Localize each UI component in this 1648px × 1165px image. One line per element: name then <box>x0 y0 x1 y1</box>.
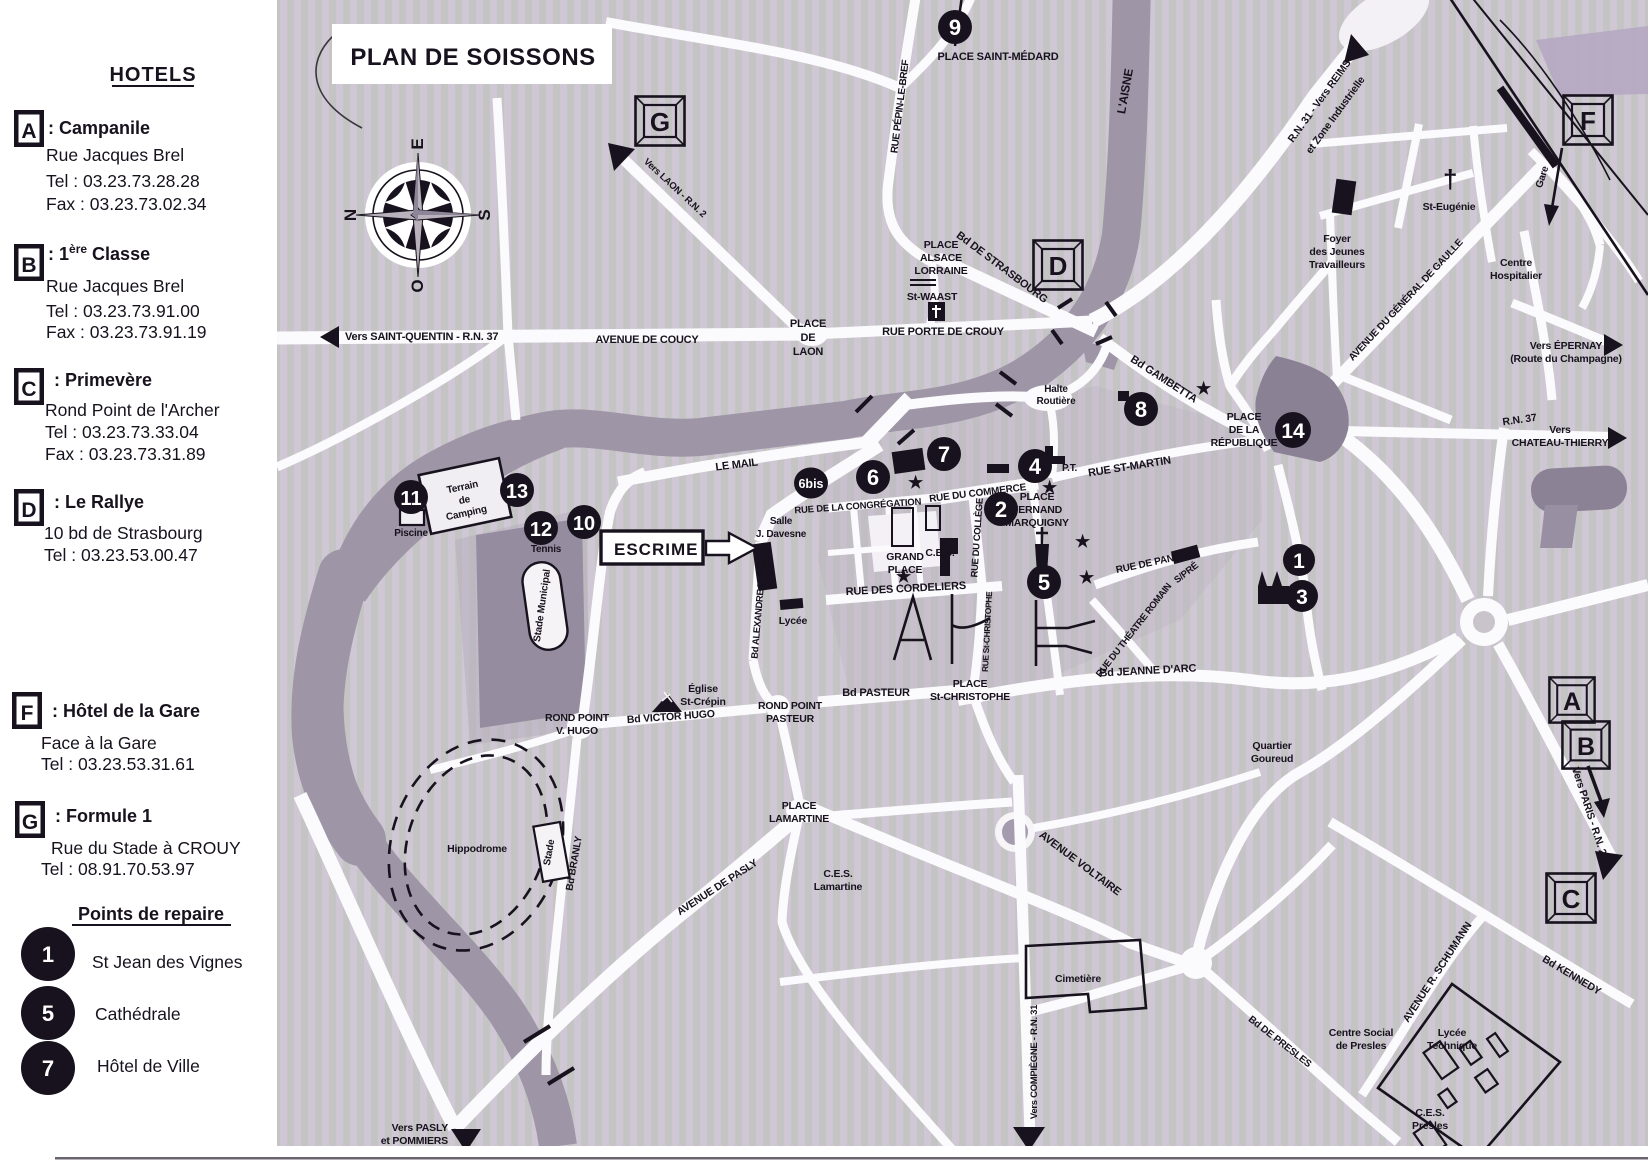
svg-text:et POMMIERS: et POMMIERS <box>381 1135 448 1147</box>
svg-text:St-WAAST: St-WAAST <box>907 291 958 303</box>
svg-text:14: 14 <box>1281 420 1305 443</box>
svg-text:12: 12 <box>530 519 552 541</box>
svg-text:RUE PORTE DE CROUY: RUE PORTE DE CROUY <box>882 326 1005 338</box>
svg-text:PLACE: PLACE <box>888 564 923 576</box>
svg-text:PLAN DE SOISSONS: PLAN DE SOISSONS <box>350 44 595 71</box>
svg-text:4: 4 <box>1029 454 1042 479</box>
svg-text:Rond Point de l'Archer: Rond Point de l'Archer <box>45 400 220 420</box>
svg-text:Tel : 03.23.73.33.04: Tel : 03.23.73.33.04 <box>45 422 199 442</box>
svg-text:HOTELS: HOTELS <box>109 64 196 86</box>
svg-text:1: 1 <box>42 942 54 967</box>
svg-text:Tel : 03.23.73.91.00: Tel : 03.23.73.91.00 <box>46 301 200 321</box>
svg-text:Halte: Halte <box>1044 384 1068 395</box>
svg-text:6bis: 6bis <box>798 477 823 491</box>
svg-text:St-Eugénie: St-Eugénie <box>1423 201 1476 213</box>
svg-text:D: D <box>1049 251 1068 281</box>
svg-text:St-CHRISTOPHE: St-CHRISTOPHE <box>930 691 1010 703</box>
svg-text:Vers COMPIÈGNE - R.N. 31: Vers COMPIÈGNE - R.N. 31 <box>1029 1004 1040 1119</box>
svg-text:Technique: Technique <box>1427 1040 1477 1052</box>
svg-text:DE: DE <box>801 332 816 344</box>
svg-text:Tel : 08.91.70.53.97: Tel : 08.91.70.53.97 <box>41 859 195 879</box>
svg-text:: Le Rallye: : Le Rallye <box>54 492 144 512</box>
svg-text:C.E.S.: C.E.S. <box>1415 1107 1444 1119</box>
svg-text:GRAND: GRAND <box>886 551 924 563</box>
svg-text:LORRAINE: LORRAINE <box>914 265 967 277</box>
svg-text:7: 7 <box>938 442 950 467</box>
svg-text:10: 10 <box>573 513 595 535</box>
svg-text:FERNAND: FERNAND <box>1012 504 1063 516</box>
svg-text:Vers: Vers <box>1549 424 1571 436</box>
svg-text:P.T.: P.T. <box>1062 463 1078 474</box>
svg-text:7: 7 <box>42 1056 54 1081</box>
svg-text:B: B <box>1577 733 1595 761</box>
svg-text:1: 1 <box>1293 550 1305 573</box>
svg-text:Fax : 03.23.73.02.34: Fax : 03.23.73.02.34 <box>46 194 207 214</box>
svg-text:13: 13 <box>506 481 528 503</box>
svg-text:: Formule 1: : Formule 1 <box>55 806 152 826</box>
svg-text:N: N <box>341 209 360 221</box>
svg-text:ROND POINT: ROND POINT <box>545 712 610 724</box>
svg-text:: Primevère: : Primevère <box>54 370 152 390</box>
svg-text:PLACE: PLACE <box>1020 491 1055 503</box>
svg-text:Lycée: Lycée <box>779 615 808 627</box>
svg-text:PLACE: PLACE <box>924 239 959 251</box>
svg-text:Rue du Stade à CROUY: Rue du Stade à CROUY <box>51 838 241 858</box>
svg-text:PLACE SAINT-MÉDARD: PLACE SAINT-MÉDARD <box>937 50 1058 63</box>
svg-text:O: O <box>408 279 427 292</box>
svg-text:Cathédrale: Cathédrale <box>95 1004 181 1024</box>
svg-text:6: 6 <box>867 465 879 490</box>
svg-text:Tel : 03.23.53.31.61: Tel : 03.23.53.31.61 <box>41 754 195 774</box>
svg-text:B: B <box>21 254 36 277</box>
svg-text:Presles: Presles <box>1412 1120 1448 1132</box>
svg-text:E: E <box>408 138 427 149</box>
svg-text:†: † <box>1443 164 1457 194</box>
svg-text:C: C <box>21 378 36 401</box>
svg-text:Face à la Gare: Face à la Gare <box>41 733 157 753</box>
svg-text:DE LA: DE LA <box>1229 424 1260 436</box>
svg-text:A: A <box>21 120 36 143</box>
svg-text:3: 3 <box>1296 586 1308 609</box>
svg-text:★: ★ <box>908 473 924 492</box>
svg-text:PLACE: PLACE <box>790 318 826 330</box>
svg-text:PASTEUR: PASTEUR <box>766 713 815 725</box>
svg-text:: Campanile: : Campanile <box>48 118 150 138</box>
svg-text:ROND POINT: ROND POINT <box>758 700 823 712</box>
svg-text:Centre Social: Centre Social <box>1329 1027 1394 1039</box>
svg-text:(Route du Champagne): (Route du Champagne) <box>1510 353 1622 365</box>
svg-text:9: 9 <box>949 15 961 40</box>
svg-text:PLACE: PLACE <box>1227 411 1262 423</box>
svg-text:de Presles: de Presles <box>1336 1040 1387 1052</box>
svg-text:Goureud: Goureud <box>1251 753 1293 765</box>
svg-text:Cimetière: Cimetière <box>1055 973 1101 985</box>
svg-text:Fax : 03.23.73.91.19: Fax : 03.23.73.91.19 <box>46 322 207 342</box>
svg-text:S: S <box>475 209 494 220</box>
svg-text:C.E.S.: C.E.S. <box>925 547 954 559</box>
svg-text:RÉPUBLIQUE: RÉPUBLIQUE <box>1211 436 1278 449</box>
svg-text:F: F <box>21 702 34 725</box>
svg-text:Vers ÉPERNAY: Vers ÉPERNAY <box>1530 339 1603 352</box>
svg-text:C: C <box>1562 884 1581 914</box>
svg-text:G: G <box>22 811 38 834</box>
svg-text:ALSACE: ALSACE <box>920 252 962 264</box>
svg-text:Hospitalier: Hospitalier <box>1490 270 1542 282</box>
svg-text:Fax : 03.23.73.31.89: Fax : 03.23.73.31.89 <box>45 444 206 464</box>
svg-text:11: 11 <box>400 488 421 510</box>
svg-text:5: 5 <box>1038 570 1050 595</box>
svg-text:C.E.S.: C.E.S. <box>823 868 852 880</box>
svg-text:AVENUE DE COUCY: AVENUE DE COUCY <box>595 334 699 346</box>
svg-text:J. Davesne: J. Davesne <box>756 529 807 540</box>
svg-text:Lamartine: Lamartine <box>814 881 863 893</box>
svg-text:Salle: Salle <box>770 516 793 527</box>
svg-text:Tel : 03.23.53.00.47: Tel : 03.23.53.00.47 <box>44 545 198 565</box>
svg-text:Vers PASLY: Vers PASLY <box>392 1122 449 1134</box>
svg-text:F: F <box>1580 106 1596 136</box>
svg-text:Vers SAINT-QUENTIN - R.N. 37: Vers SAINT-QUENTIN - R.N. 37 <box>345 331 498 343</box>
svg-text:St Jean des Vignes: St Jean des Vignes <box>92 952 243 972</box>
svg-text:St-Crépin: St-Crépin <box>680 696 725 708</box>
svg-text:10 bd de Strasbourg: 10 bd de Strasbourg <box>44 523 203 543</box>
svg-text:G: G <box>650 107 670 137</box>
svg-text:: Hôtel de la Gare: : Hôtel de la Gare <box>52 701 200 721</box>
svg-text:Points de repaire: Points de repaire <box>78 904 224 924</box>
svg-text:Quartier: Quartier <box>1252 740 1291 752</box>
svg-text:Hippodrome: Hippodrome <box>447 843 507 855</box>
svg-text:5: 5 <box>42 1001 54 1026</box>
svg-text:LAMARTINE: LAMARTINE <box>769 813 829 825</box>
svg-text:★: ★ <box>1079 568 1095 587</box>
svg-text:Rue Jacques Brel: Rue Jacques Brel <box>46 145 184 165</box>
svg-text:Tel : 03.23.73.28.28: Tel : 03.23.73.28.28 <box>46 171 200 191</box>
svg-text:LAON: LAON <box>793 346 824 358</box>
svg-text:A: A <box>1563 688 1581 716</box>
svg-text:Hôtel de Ville: Hôtel de Ville <box>97 1056 200 1076</box>
svg-text:des Jeunes: des Jeunes <box>1309 246 1365 258</box>
svg-text:PLACE: PLACE <box>782 800 817 812</box>
svg-text:Rue Jacques Brel: Rue Jacques Brel <box>46 276 184 296</box>
svg-text:D: D <box>21 499 36 522</box>
svg-text:PLACE: PLACE <box>953 678 988 690</box>
svg-text:★: ★ <box>1075 532 1091 551</box>
svg-text:Tennis: Tennis <box>531 544 562 555</box>
svg-text:Foyer: Foyer <box>1323 233 1351 245</box>
svg-text:MARQUIGNY: MARQUIGNY <box>1005 517 1069 529</box>
svg-text:8: 8 <box>1135 397 1147 422</box>
svg-text:Routière: Routière <box>1037 396 1077 407</box>
svg-text:ESCRIME: ESCRIME <box>614 540 698 559</box>
svg-text:Église: Église <box>688 682 718 695</box>
svg-text:CHATEAU-THIERRY: CHATEAU-THIERRY <box>1512 437 1609 449</box>
svg-text:Lycée: Lycée <box>1438 1027 1467 1039</box>
svg-text:V. HUGO: V. HUGO <box>556 725 598 737</box>
svg-text:Bd PASTEUR: Bd PASTEUR <box>842 687 910 699</box>
svg-text:Centre: Centre <box>1500 257 1532 269</box>
svg-text:Piscine: Piscine <box>394 528 428 539</box>
svg-text:: 1ère Classe: : 1ère Classe <box>48 242 150 264</box>
svg-text:Travailleurs: Travailleurs <box>1309 259 1365 271</box>
